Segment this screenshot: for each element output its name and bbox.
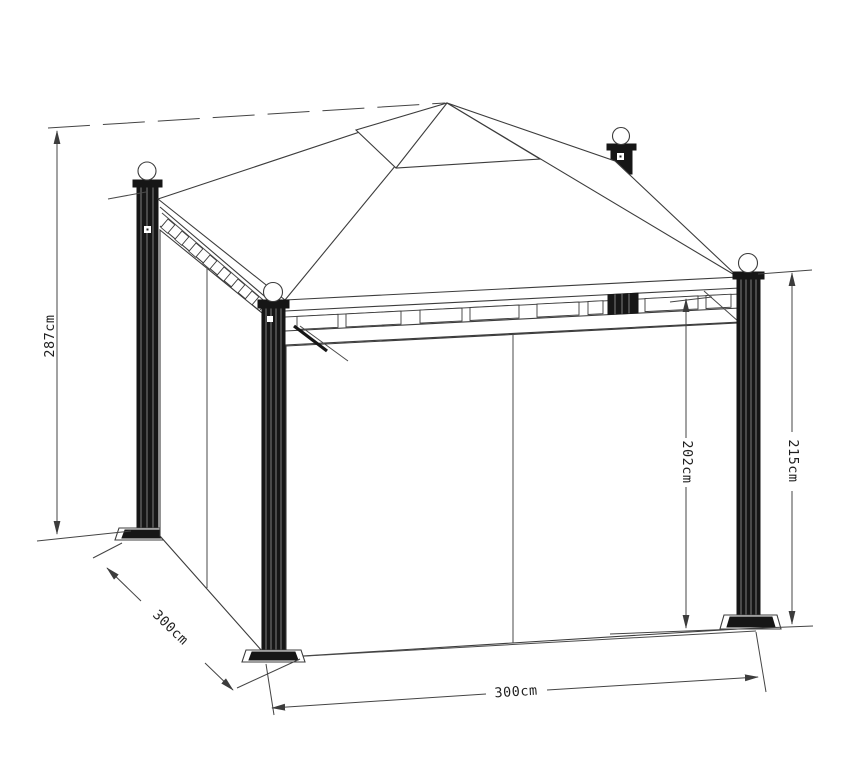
post-bolt-detail	[267, 316, 273, 322]
dim-label-side-depth: 300cm	[149, 607, 191, 648]
drawing-svg: 287cm 300cm 202cm 215cm 300cm	[0, 0, 842, 768]
post-cap	[733, 272, 764, 279]
dim-label-post-height: 215cm	[785, 439, 801, 482]
dimension-line	[272, 694, 486, 708]
ball-finial-icon	[613, 128, 630, 145]
ball-finial-icon	[739, 254, 758, 273]
dimension-line	[547, 677, 758, 690]
extension-line	[93, 543, 122, 558]
post-shaft	[262, 308, 285, 660]
post-cap	[133, 180, 162, 187]
post-shaft	[137, 187, 158, 535]
beam-mount-block	[608, 293, 638, 314]
extension-line	[756, 632, 766, 692]
ball-finial-icon	[264, 283, 283, 302]
gazebo-dimension-drawing: 287cm 300cm 202cm 215cm 300cm	[0, 0, 842, 768]
post-shaft	[737, 279, 760, 627]
dim-label-inner-height: 202cm	[679, 440, 695, 483]
dimension-line	[205, 663, 233, 690]
extension-line	[758, 270, 812, 274]
extension-line	[237, 659, 300, 688]
ball-finial-icon	[138, 162, 156, 180]
curtain-left-side	[160, 230, 262, 651]
dimension-line	[107, 568, 141, 601]
dim-label-front-width: 300cm	[494, 683, 538, 702]
dim-label-total-height: 287cm	[42, 314, 58, 357]
